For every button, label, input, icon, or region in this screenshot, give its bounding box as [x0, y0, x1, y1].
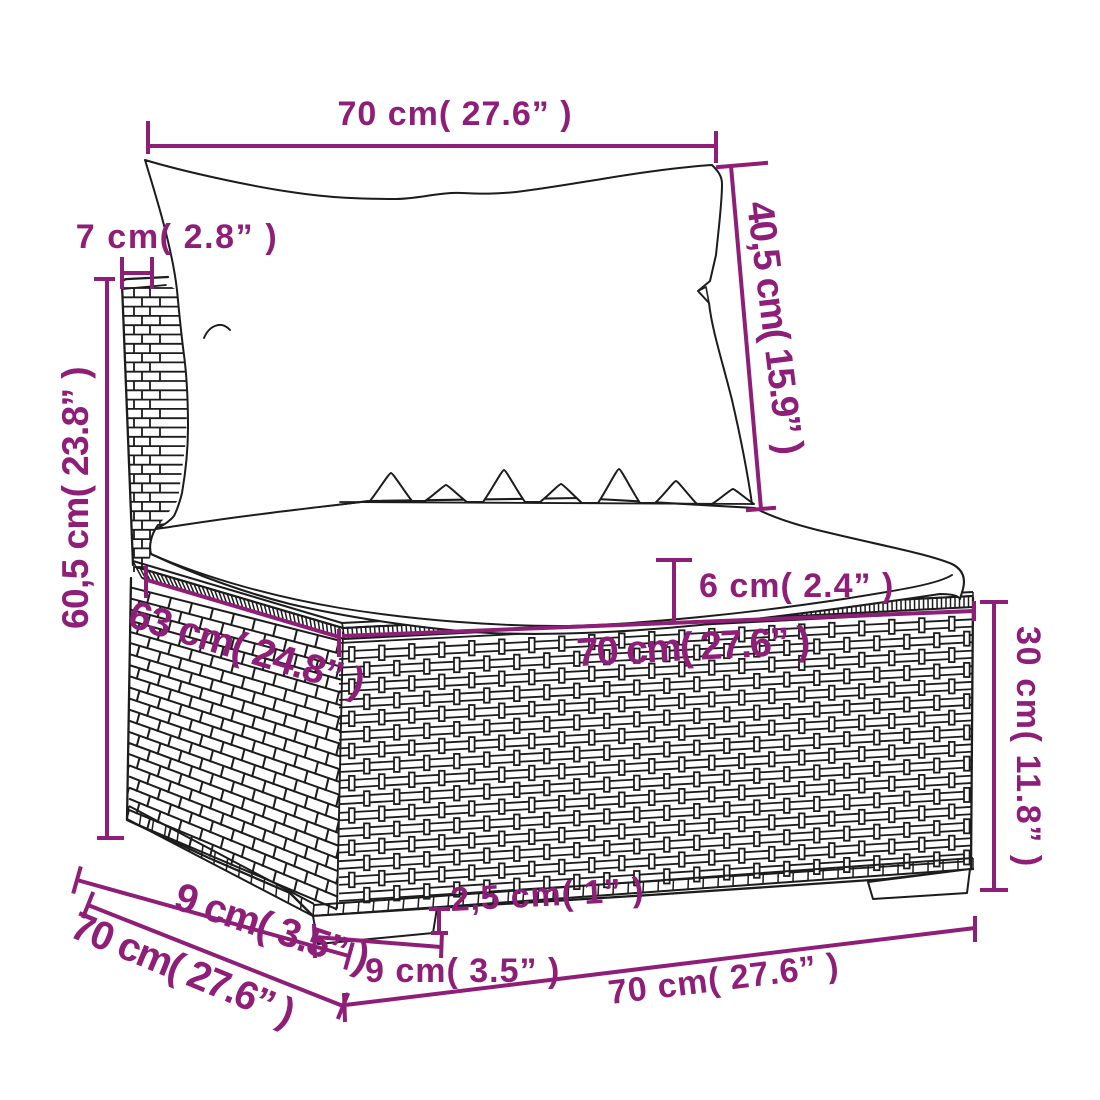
svg-text:6 cm( 2.4” ): 6 cm( 2.4” )	[699, 567, 894, 605]
svg-text:7 cm( 2.8” ): 7 cm( 2.8” )	[76, 218, 279, 256]
svg-text:30 cm( 11.8” ): 30 cm( 11.8” )	[1009, 626, 1047, 868]
svg-text:70 cm( 27.6” ): 70 cm( 27.6” )	[337, 95, 572, 133]
svg-text:60,5 cm( 23.8” ): 60,5 cm( 23.8” )	[55, 367, 96, 629]
svg-text:9 cm( 3.5” ): 9 cm( 3.5” )	[365, 952, 560, 990]
